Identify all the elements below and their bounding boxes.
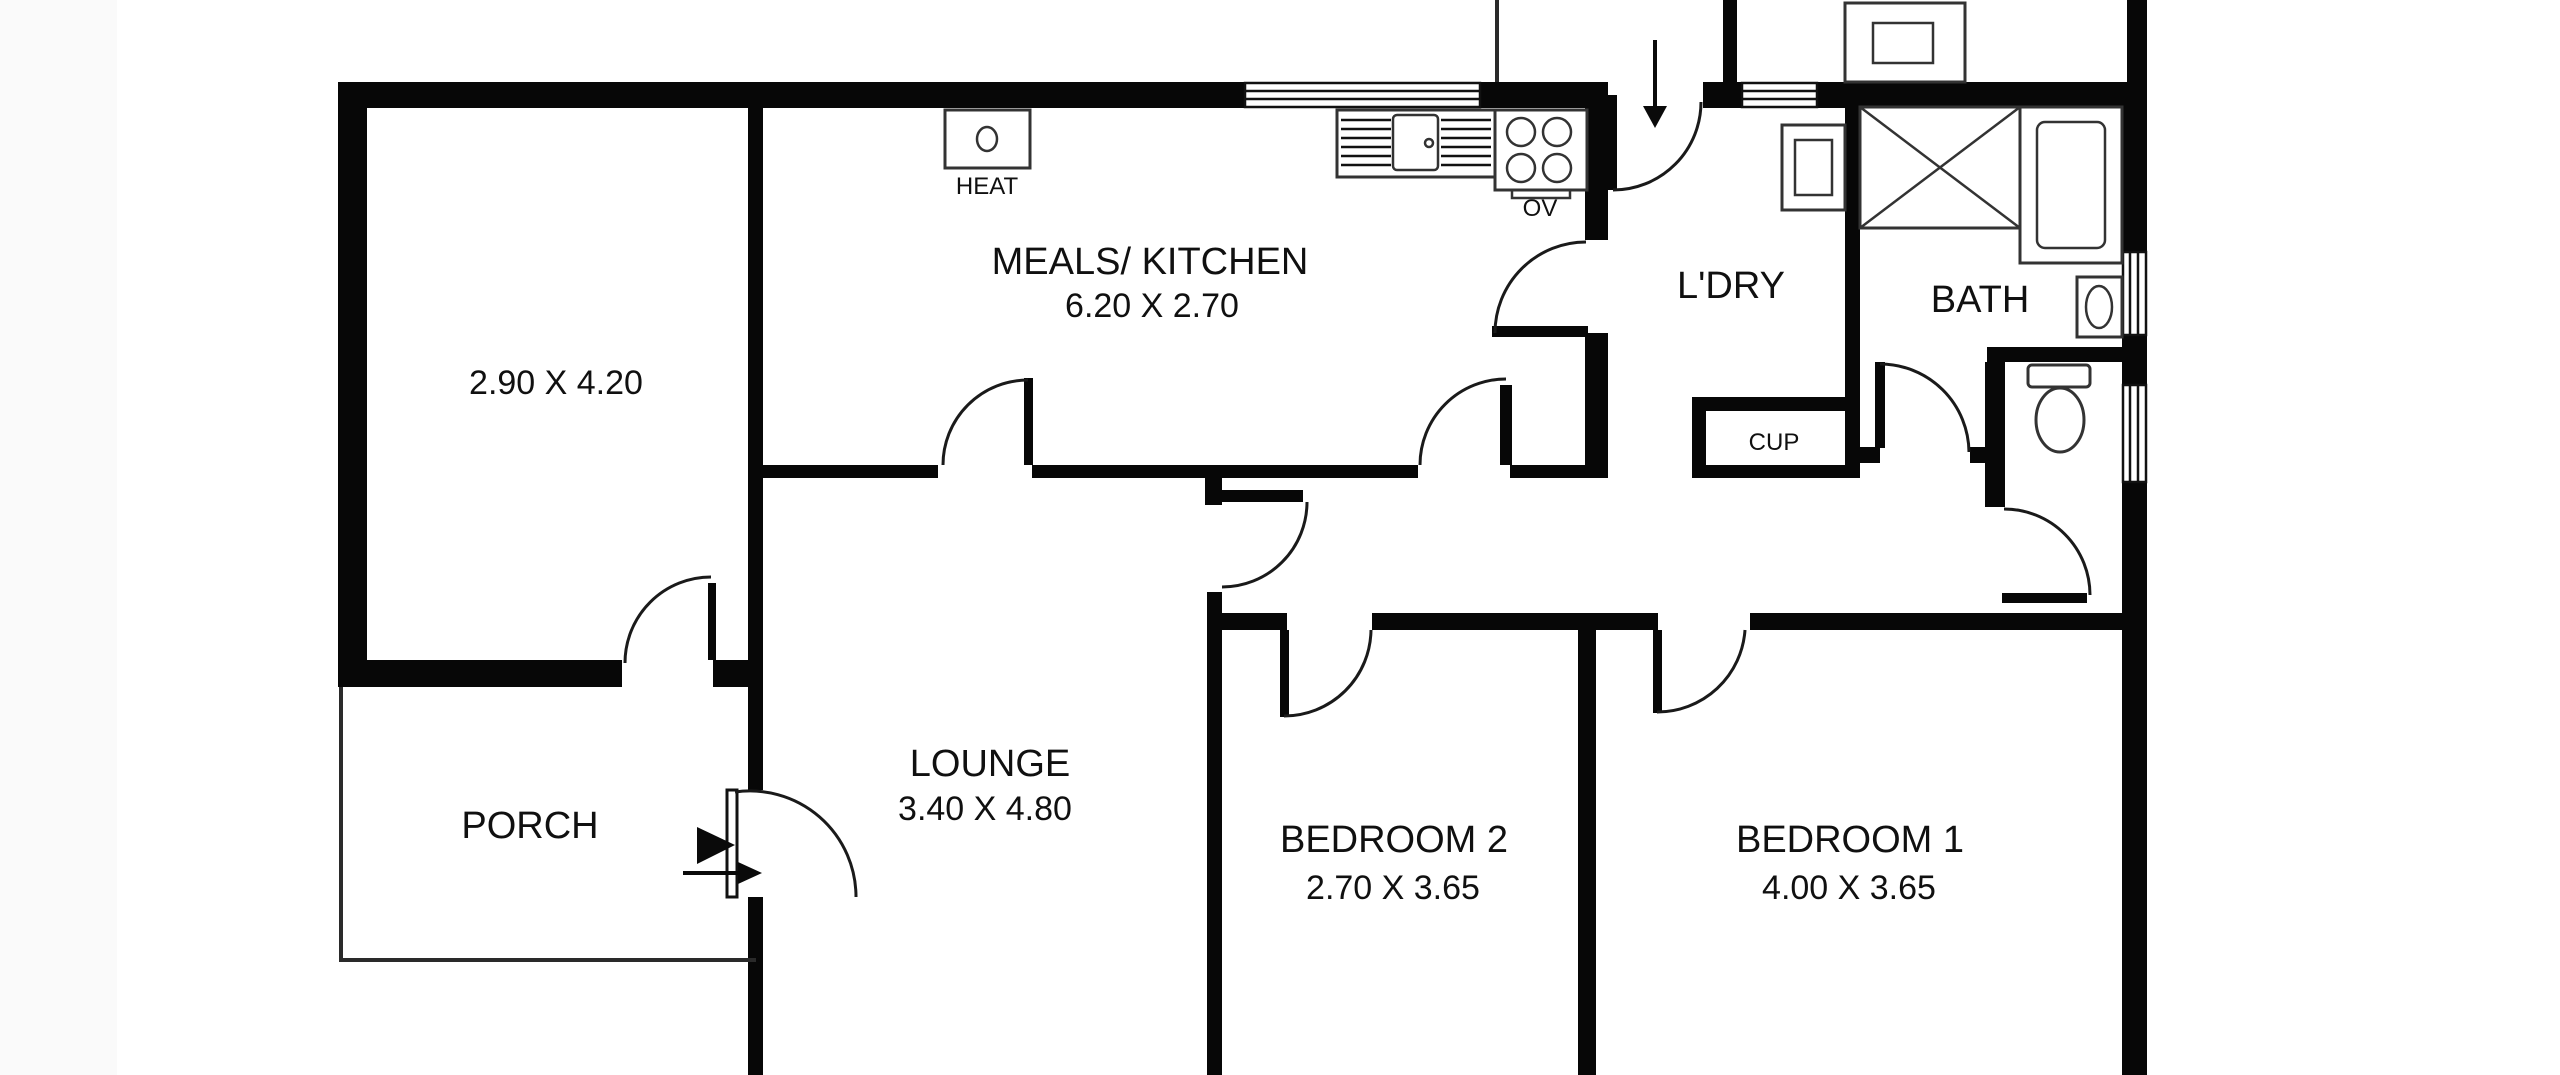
- porch-name-label: PORCH: [461, 805, 598, 847]
- door-lounge-hall: [1218, 490, 1307, 587]
- bath-name-label: BATH: [1931, 279, 2030, 321]
- door-entry: [727, 790, 856, 897]
- meals-kitchen-dims-label: 6.20 X 2.70: [1065, 287, 1239, 325]
- wall-bath-south-stub-left: [1845, 447, 1880, 463]
- window-wc: [2123, 385, 2146, 482]
- door-hall-meals: [1420, 379, 1512, 465]
- lounge-dims-label: 3.40 X 4.80: [898, 790, 1072, 828]
- wall-lounge-bed2-divider: [1207, 592, 1222, 1075]
- wall-top-2: [1480, 82, 1608, 108]
- wall-bed2-bed1-divider: [1578, 630, 1596, 1075]
- wall-hall-north-1: [763, 465, 938, 478]
- wall-frontroom-bottom-stub: [713, 660, 763, 687]
- washer-icon: [1845, 3, 1965, 82]
- wall-bedrooms-top-3: [1750, 613, 2122, 630]
- wall-cup-bottom: [1692, 465, 1858, 478]
- scan-margin: [0, 0, 117, 1075]
- door-kitchen-west: [943, 378, 1033, 465]
- rear-entry-arrow: [1643, 40, 1667, 128]
- window-bath: [2123, 252, 2146, 335]
- door-bedroom-2: [1280, 630, 1371, 717]
- rear-structure-line: [1495, 0, 1499, 82]
- wall-top-1: [338, 82, 1245, 108]
- laundry-name-label: L'DRY: [1677, 265, 1785, 307]
- door-kitchen-laundry: [1492, 242, 1588, 337]
- room-labels: 2.90 X 4.20 MEALS/ KITCHEN 6.20 X 2.70 H…: [461, 173, 2029, 907]
- door-bath: [1875, 362, 1969, 452]
- frontroom-dims-label: 2.90 X 4.20: [469, 364, 643, 402]
- wall-kitchen-east-lower: [1585, 333, 1608, 478]
- oven-label: OV: [1523, 195, 1558, 222]
- wall-right-3: [2122, 482, 2147, 1075]
- door-wc: [2002, 509, 2090, 603]
- floorplan-canvas: 2.90 X 4.20 MEALS/ KITCHEN 6.20 X 2.70 H…: [0, 0, 2560, 1075]
- wall-hall-north-2: [1032, 465, 1210, 478]
- wall-top-4: [1817, 82, 2147, 108]
- bedroom1-dims-label: 4.00 X 3.65: [1762, 869, 1936, 907]
- door-bedroom-1: [1653, 630, 1745, 713]
- kitchen-sink-icon: [1337, 110, 1495, 177]
- wall-right-2: [2122, 335, 2147, 385]
- wall-bath-south-stub-right: [1970, 447, 1987, 463]
- wall-frontroom-bottom: [338, 660, 622, 687]
- wall-right-1: [2122, 107, 2147, 252]
- heater-icon: [945, 110, 1030, 168]
- window-kitchen: [1245, 83, 1480, 107]
- wall-bedrooms-top-1: [1222, 613, 1287, 630]
- wall-top-3: [1703, 82, 1742, 108]
- wall-rear-annex-right: [2127, 0, 2147, 82]
- wall-hall-north-3: [1222, 465, 1418, 478]
- heater-label: HEAT: [956, 173, 1019, 200]
- fixtures: [945, 3, 2122, 452]
- bedroom2-name-label: BEDROOM 2: [1280, 819, 1508, 861]
- wall-lounge-west-upper: [748, 107, 763, 790]
- bedroom2-dims-label: 2.70 X 3.65: [1306, 869, 1480, 907]
- bathtub-icon: [2020, 107, 2122, 263]
- meals-kitchen-name-label: MEALS/ KITCHEN: [992, 241, 1309, 283]
- bedroom1-name-label: BEDROOM 1: [1736, 819, 1964, 861]
- laundry-trough-icon: [1782, 125, 1845, 210]
- wall-wc-west: [1985, 362, 2005, 507]
- toilet-icon: [2028, 365, 2090, 452]
- door-frontroom: [625, 577, 716, 663]
- wall-lounge-west-lower: [748, 897, 763, 1075]
- wall-laundry-bath-divider: [1845, 107, 1860, 397]
- stove-icon: [1495, 110, 1587, 198]
- wall-left: [338, 82, 367, 687]
- wall-bath-wc-divider: [1987, 347, 2122, 362]
- basin-icon: [2077, 277, 2122, 337]
- shower-icon: [1860, 107, 2020, 228]
- window-laundry: [1742, 83, 1817, 107]
- wall-bedrooms-top-2: [1372, 613, 1658, 630]
- wall-rear-annex-left: [1723, 0, 1737, 82]
- floorplan-drawing: 2.90 X 4.20 MEALS/ KITCHEN 6.20 X 2.70 H…: [0, 0, 2560, 1075]
- wall-cup-top: [1692, 397, 1858, 411]
- lounge-name-label: LOUNGE: [910, 743, 1070, 785]
- front-entry-arrow-small: [683, 862, 762, 884]
- cupboard-name-label: CUP: [1749, 429, 1800, 456]
